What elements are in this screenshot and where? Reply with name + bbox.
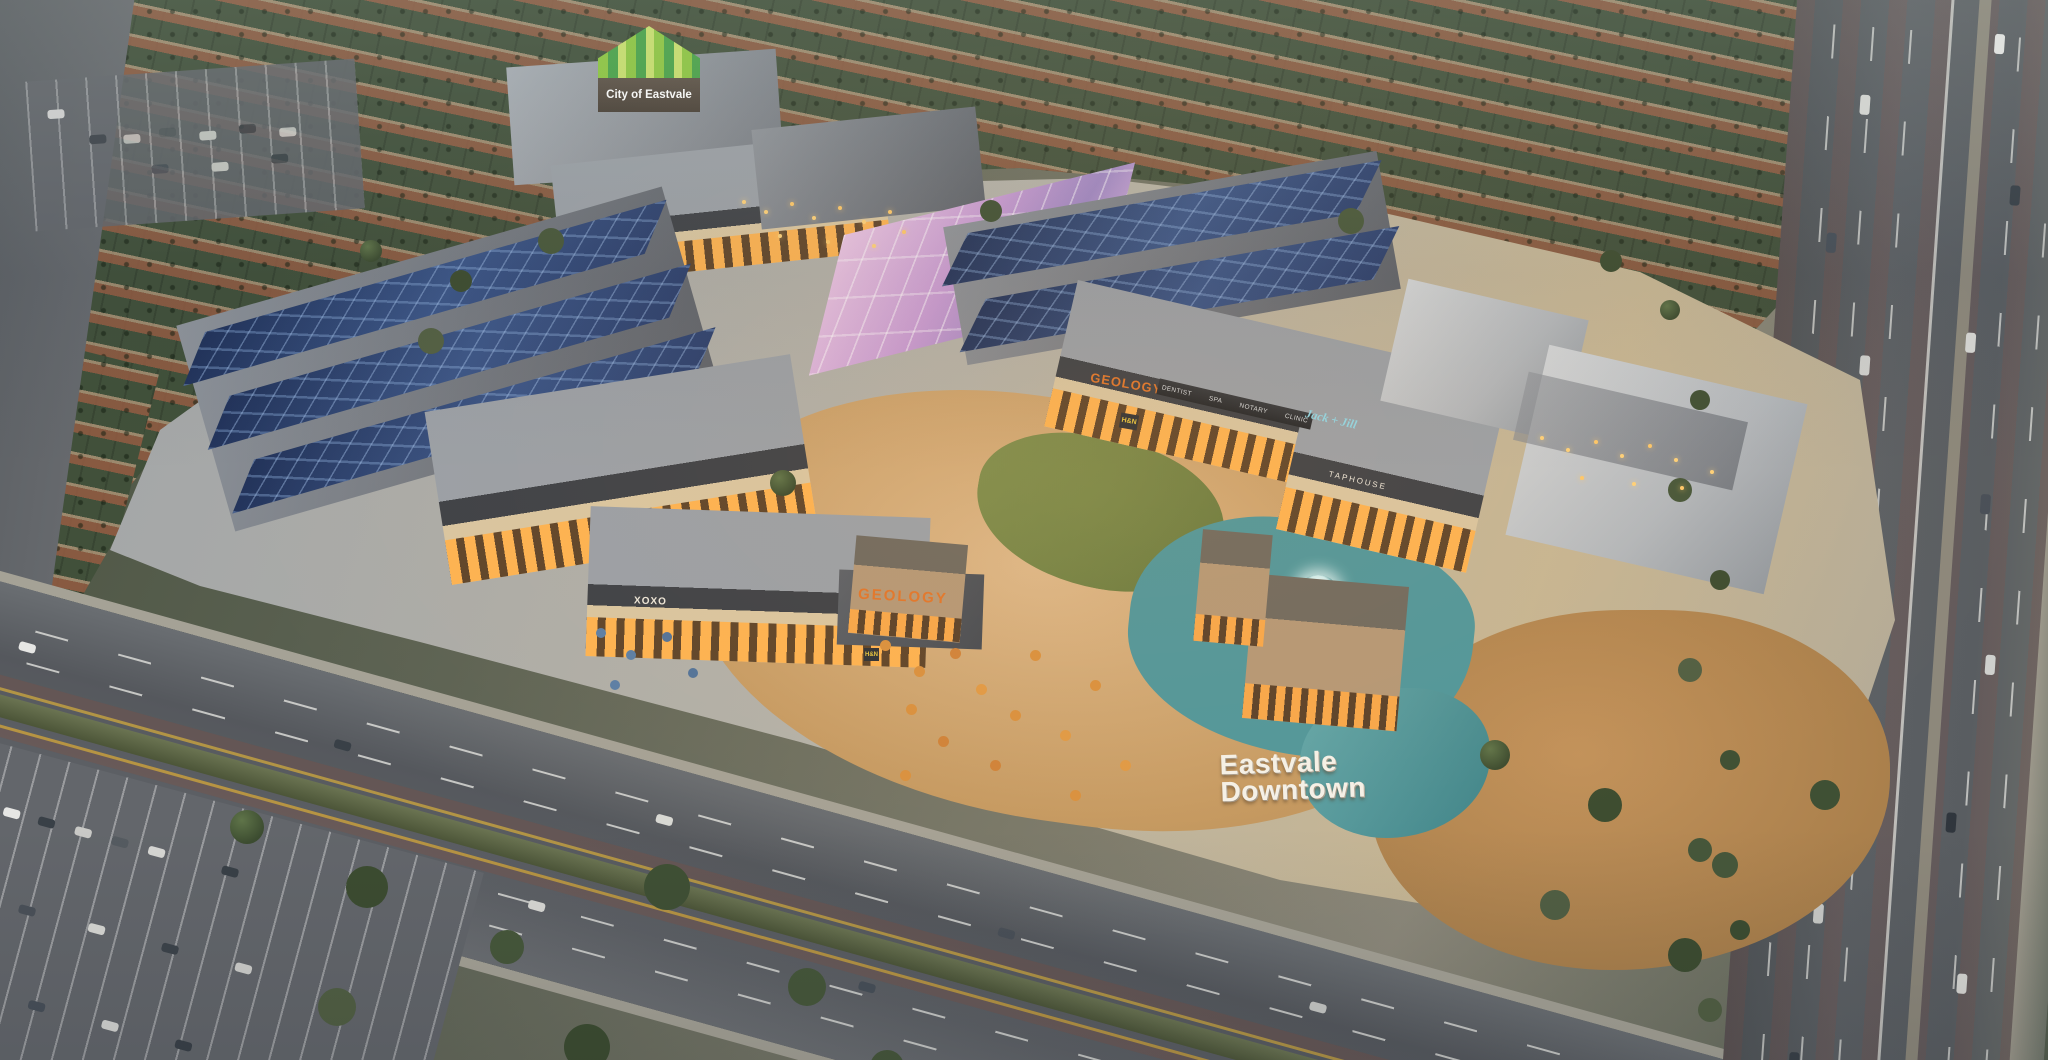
- string-lights-glow: [742, 200, 746, 204]
- sign-hn-lower: H&N: [864, 648, 879, 661]
- monument-line2: Downtown: [1220, 774, 1366, 806]
- sign-xoxo: XOXO: [634, 595, 667, 607]
- monument-sign: Eastvale Downtown: [1219, 747, 1366, 805]
- parked-car-cluster: [89, 134, 107, 144]
- highway-traffic-northbound: [1994, 34, 2005, 55]
- tree-cluster-southeast: [1480, 740, 1510, 770]
- tree-cluster-south: [230, 810, 264, 844]
- pond-tower: [1193, 529, 1272, 647]
- tree-cluster-north-edge: [360, 240, 382, 262]
- blue-umbrella-cluster: [596, 628, 606, 638]
- parking-lot-northwest: [25, 59, 365, 232]
- green-canopy-roof: [598, 26, 700, 78]
- sign-hn-upper: H&N: [1119, 413, 1139, 431]
- orange-umbrella-cluster: [880, 640, 891, 651]
- sign-spa: SPA: [1208, 395, 1223, 405]
- parked-car-cluster: [47, 109, 65, 119]
- aerial-rendering: City of Eastvale GEOLOGY DENTIST SPA NOT…: [0, 0, 2048, 1060]
- sign-dentist: DENTIST: [1161, 384, 1192, 398]
- city-tower-sign: City of Eastvale: [598, 26, 700, 112]
- string-lights-glow: [1540, 436, 1544, 440]
- tree-row-highway-frontage: [1660, 300, 1680, 320]
- traffic-cars-westbound: [18, 641, 37, 654]
- parked-car-cluster: [2, 807, 21, 820]
- tree-cluster-plaza: [770, 470, 796, 496]
- city-tower-label: City of Eastvale: [606, 89, 692, 101]
- sign-notary: NOTARY: [1239, 402, 1269, 415]
- city-tower-sign-text: City of Eastvale: [598, 78, 700, 112]
